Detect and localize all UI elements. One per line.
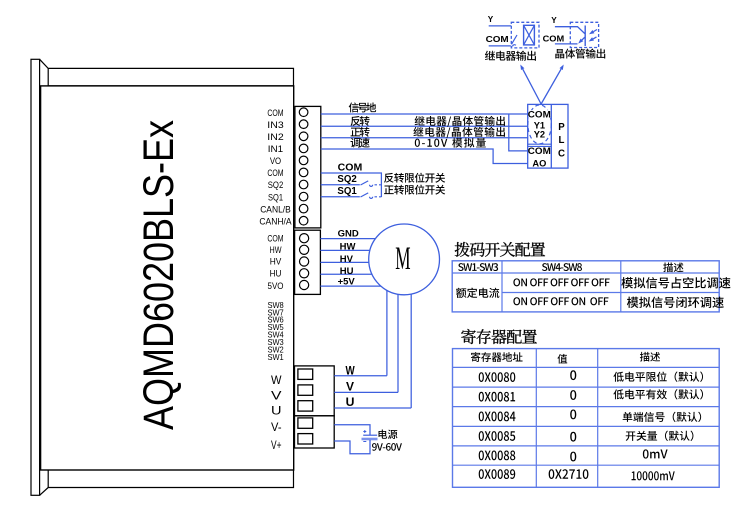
svg-text:SQ2: SQ2 — [337, 173, 357, 185]
svg-text:SW1: SW1 — [267, 352, 284, 362]
svg-text:CANL/B: CANL/B — [260, 204, 291, 214]
svg-text:AQMD6020BLS-Ex: AQMD6020BLS-Ex — [136, 120, 183, 430]
svg-text:V+: V+ — [271, 438, 282, 452]
svg-text:P: P — [558, 122, 565, 133]
svg-text:SQ1: SQ1 — [268, 192, 283, 202]
svg-text:HV: HV — [340, 254, 354, 265]
svg-text:VO: VO — [270, 156, 281, 166]
svg-text:COM: COM — [543, 33, 565, 43]
svg-text:U: U — [346, 396, 355, 409]
svg-text:W: W — [346, 364, 355, 377]
svg-text:COM: COM — [338, 162, 363, 174]
svg-text:IN2: IN2 — [267, 132, 283, 142]
svg-text:L: L — [559, 135, 565, 146]
svg-text:5VO: 5VO — [268, 281, 284, 291]
svg-text:HU: HU — [270, 269, 282, 279]
svg-text:U: U — [271, 403, 282, 417]
svg-text:CANH/A: CANH/A — [259, 216, 291, 226]
svg-text:V: V — [271, 389, 282, 403]
svg-text:+5V: +5V — [338, 276, 356, 287]
svg-text:AO: AO — [532, 159, 546, 169]
svg-text:COM: COM — [267, 233, 283, 243]
svg-text:V: V — [346, 380, 354, 393]
svg-text:SQ1: SQ1 — [337, 185, 357, 197]
svg-text:COM: COM — [528, 146, 551, 156]
svg-text:COM: COM — [267, 108, 283, 118]
svg-text:M: M — [395, 240, 410, 276]
svg-text:IN3: IN3 — [267, 120, 283, 130]
svg-text:IN1: IN1 — [268, 144, 283, 154]
svg-text:HW: HW — [340, 241, 356, 252]
svg-text:HU: HU — [340, 266, 354, 277]
svg-text:COM: COM — [486, 34, 509, 44]
svg-text:COM: COM — [528, 110, 551, 120]
svg-text:Y: Y — [551, 16, 557, 25]
svg-text:C: C — [558, 148, 565, 159]
svg-text:Y2: Y2 — [534, 129, 545, 139]
svg-text:HW: HW — [270, 245, 282, 255]
svg-text:W: W — [271, 373, 282, 387]
svg-text:Y: Y — [488, 15, 494, 24]
svg-text:HV: HV — [270, 257, 282, 267]
svg-text:V-: V- — [271, 420, 282, 434]
svg-text:COM: COM — [267, 168, 283, 178]
svg-text:GND: GND — [338, 228, 359, 239]
svg-text:SQ2: SQ2 — [268, 180, 284, 190]
